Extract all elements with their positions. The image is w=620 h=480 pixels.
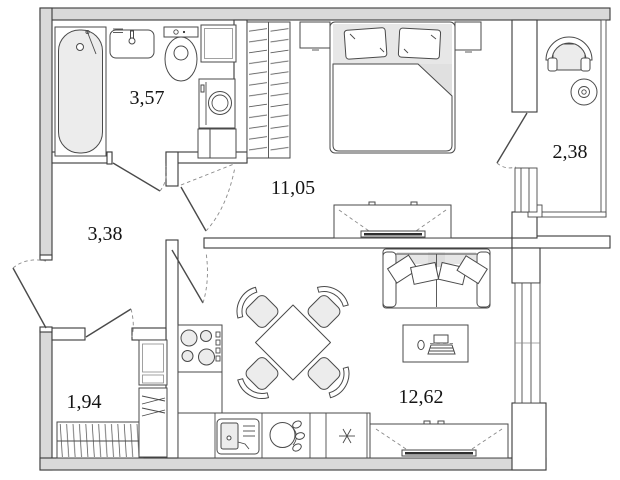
bathroom-door-jamb (107, 152, 112, 164)
bedside-table-right-icon (455, 22, 481, 52)
dining-table-icon (237, 287, 349, 399)
storage-area-label: 1,94 (67, 391, 102, 413)
sofa-icon (383, 249, 490, 308)
bedroom-balcony-window (515, 168, 537, 212)
kitchen-counter-left (178, 372, 222, 413)
washbasin-icon (110, 29, 154, 58)
storage-unit-icon (139, 388, 167, 457)
entrance-jamb-top (40, 255, 52, 260)
storage-door (86, 309, 133, 337)
living-room-window (515, 283, 540, 403)
pillow-icon (398, 28, 440, 59)
wall-storage-top-left (52, 328, 85, 340)
balcony-armchair-icon (546, 37, 592, 71)
double-bed-icon (330, 22, 455, 153)
bathroom-cabinet-top-icon (201, 25, 236, 62)
wall-bedroom-balcony (512, 20, 537, 112)
bathroom-area-label: 3,57 (130, 87, 165, 109)
bedroom-furniture (247, 22, 481, 238)
coffee-table-icon (403, 325, 468, 362)
balcony-wall-right (601, 20, 606, 217)
wall-hall-kitchen (166, 240, 178, 458)
washing-machine-icon (199, 79, 235, 128)
bedside-table-left-icon (300, 22, 330, 50)
bathroom-door (113, 163, 166, 191)
living-tv-unit-icon (370, 421, 508, 458)
kitchen-sink-icon (217, 419, 259, 454)
bathtub-icon (55, 27, 106, 156)
wall-living-right-upper (512, 248, 540, 283)
bedroom-door (181, 164, 235, 231)
windows (515, 168, 540, 403)
wall-bedroom-living (204, 238, 512, 248)
balcony-wall-bottom (537, 212, 606, 217)
bedroom-area-label: 11,05 (271, 177, 315, 199)
floor-plan-canvas: 3,57 3,38 11,05 2,38 1,94 12,62 (0, 0, 620, 480)
bedroom-tv-unit-icon (334, 202, 451, 238)
hall-pillar (166, 152, 178, 186)
balcony-door (497, 113, 527, 168)
entrance-door (13, 260, 46, 328)
living-kitchen-area-label: 12,62 (399, 386, 444, 408)
closet-rail-icon (57, 422, 143, 458)
cooktop-icon (178, 325, 222, 372)
pillow-icon (344, 28, 387, 60)
toilet-icon (164, 27, 198, 81)
floor-plan-svg: 3,57 3,38 11,05 2,38 1,94 12,62 (0, 0, 620, 480)
balcony-furniture (546, 37, 597, 105)
wall-storage-top-right (132, 328, 166, 340)
balcony-area-label: 2,38 (553, 141, 588, 163)
hanger-wardrobe-icon (247, 22, 290, 158)
balcony-round-table-icon (571, 79, 597, 105)
wall-living-right-lower (512, 403, 546, 470)
hallway-area-label: 3,38 (88, 223, 123, 245)
bathroom-cabinet-bottom-icon (198, 129, 236, 158)
storage-cabinet-icon (139, 340, 167, 385)
